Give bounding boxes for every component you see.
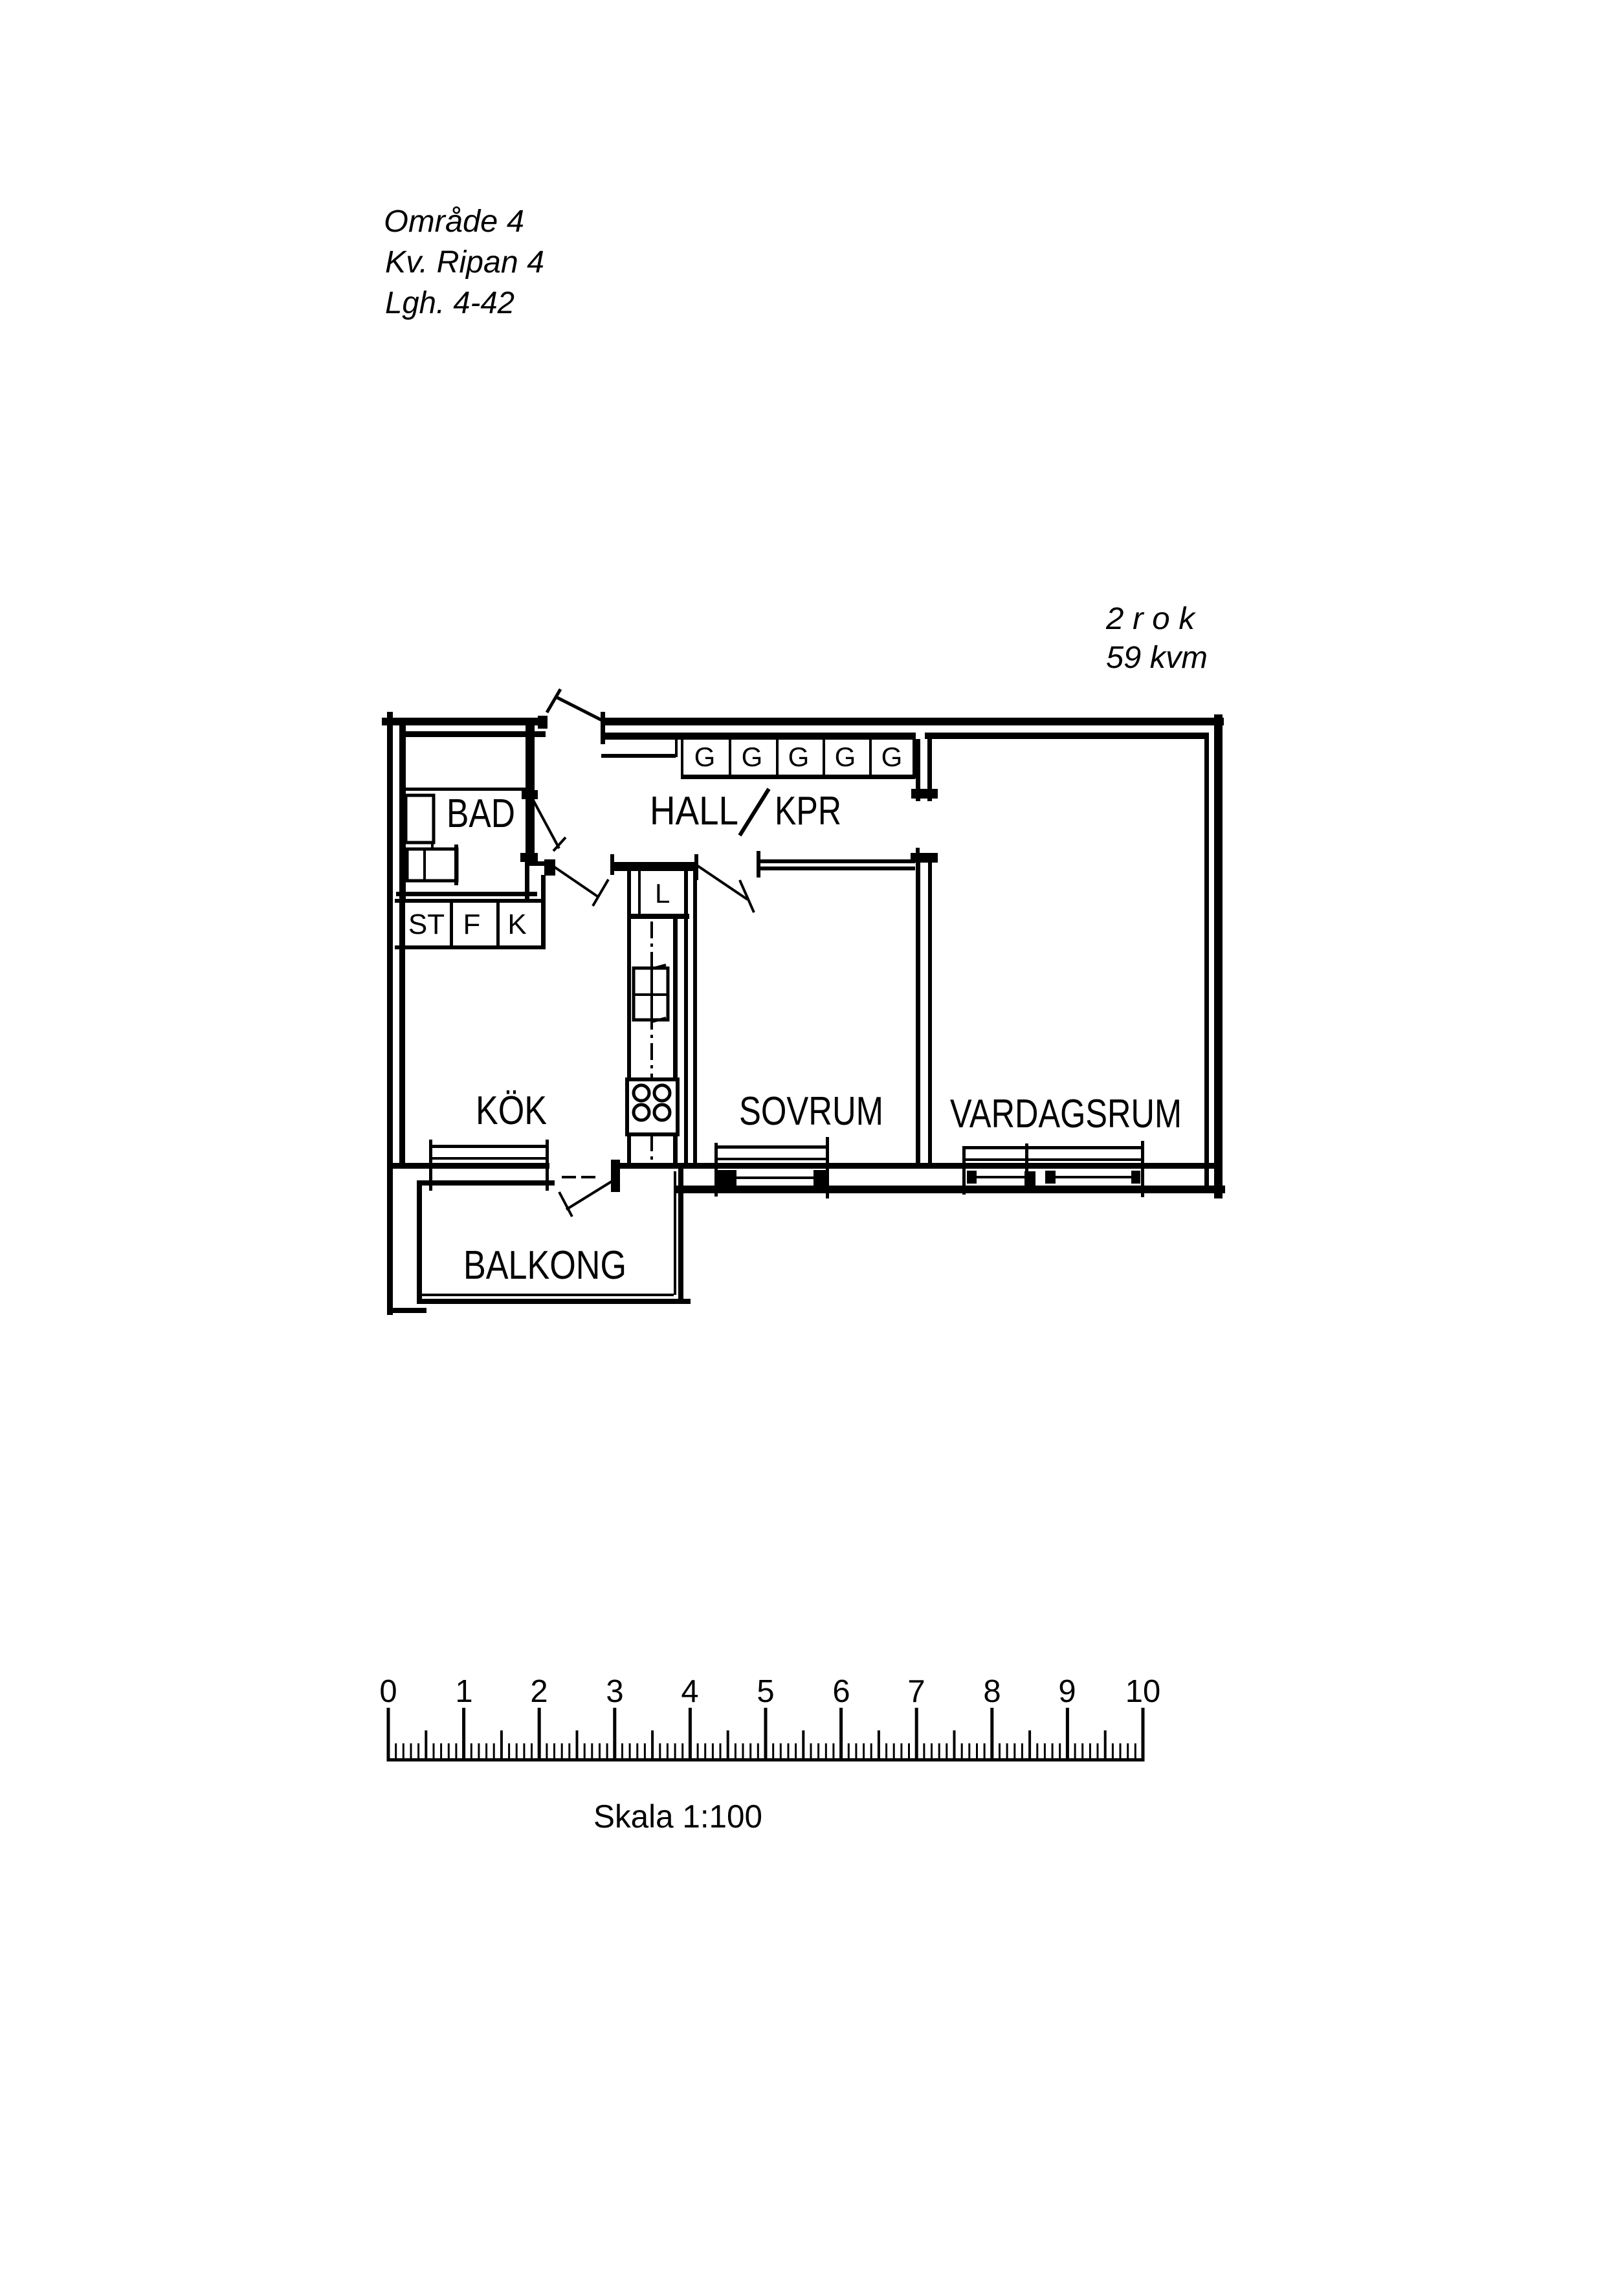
svg-text:G: G	[742, 742, 763, 772]
svg-text:1: 1	[455, 1674, 472, 1709]
svg-text:VARDAGSRUM: VARDAGSRUM	[950, 1092, 1182, 1136]
svg-text:Område 4: Område 4	[384, 204, 524, 239]
svg-text:G: G	[788, 742, 810, 772]
svg-text:0: 0	[379, 1674, 397, 1709]
svg-text:G: G	[835, 742, 856, 772]
svg-text:L: L	[655, 878, 670, 909]
svg-text:7: 7	[907, 1674, 925, 1709]
svg-text:KÖK: KÖK	[476, 1088, 547, 1133]
svg-text:F: F	[463, 909, 481, 940]
svg-text:Kv. Ripan 4: Kv. Ripan 4	[385, 245, 544, 280]
svg-text:4: 4	[681, 1674, 698, 1709]
svg-text:59 kvm: 59 kvm	[1106, 641, 1208, 675]
svg-text:5: 5	[757, 1674, 774, 1709]
svg-text:Lgh. 4-42: Lgh. 4-42	[385, 286, 515, 320]
svg-text:KPR: KPR	[775, 789, 841, 833]
svg-text:ST: ST	[408, 909, 445, 940]
svg-text:10: 10	[1125, 1674, 1161, 1709]
svg-text:8: 8	[983, 1674, 1001, 1709]
svg-text:2 r o k: 2 r o k	[1105, 602, 1197, 636]
svg-text:6: 6	[832, 1674, 850, 1709]
svg-text:2: 2	[530, 1674, 548, 1709]
svg-text:9: 9	[1058, 1674, 1076, 1709]
svg-text:Skala 1:100: Skala 1:100	[593, 1798, 762, 1835]
svg-text:G: G	[881, 742, 903, 772]
svg-text:SOVRUM: SOVRUM	[739, 1089, 883, 1134]
svg-text:G: G	[694, 742, 716, 772]
svg-text:K: K	[507, 909, 526, 940]
svg-text:HALL: HALL	[650, 789, 738, 833]
svg-text:BAD: BAD	[447, 791, 515, 836]
svg-text:3: 3	[606, 1674, 623, 1709]
svg-text:BALKONG: BALKONG	[463, 1243, 626, 1288]
